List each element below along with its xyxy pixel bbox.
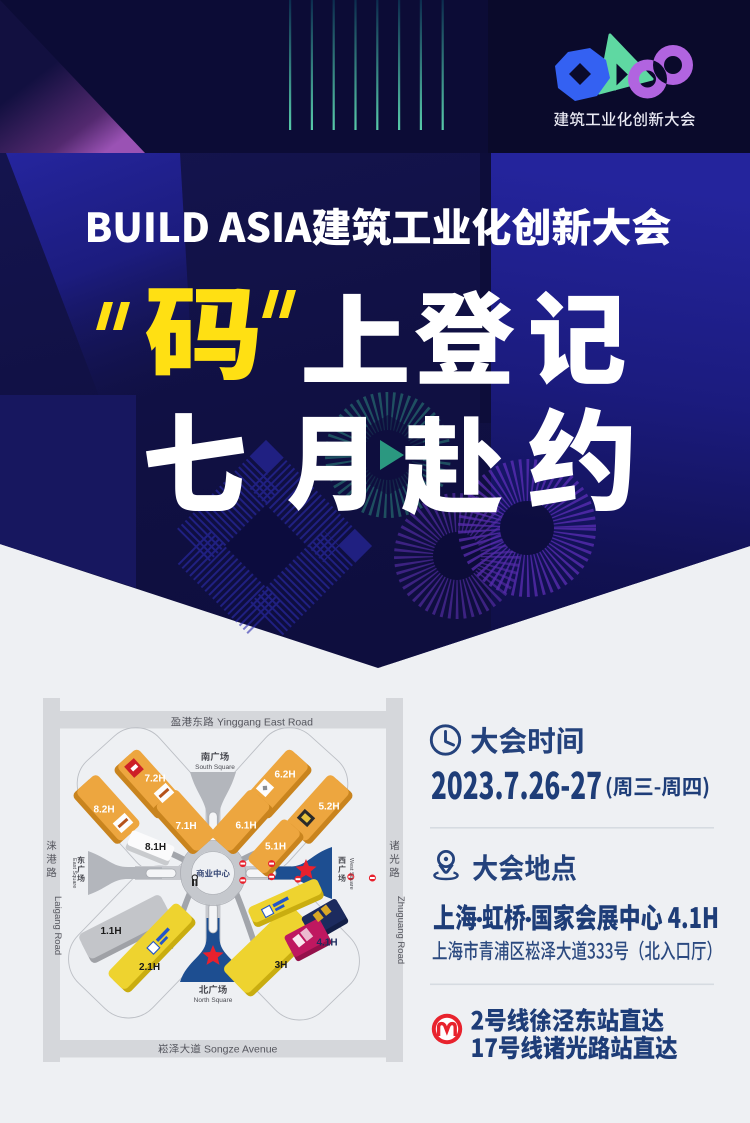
svg-text:Songze Avenue: Songze Avenue [204, 1044, 278, 1056]
svg-text:Zhuguang Road: Zhuguang Road [395, 896, 406, 964]
svg-text:7.1H: 7.1H [175, 821, 196, 832]
svg-text:South Square: South Square [195, 764, 235, 771]
svg-text:Laigang Road: Laigang Road [52, 896, 63, 955]
svg-text:1.1H: 1.1H [100, 926, 121, 937]
svg-text:2.1H: 2.1H [139, 962, 160, 973]
svg-text:8.2H: 8.2H [93, 805, 114, 816]
svg-text:4.1H: 4.1H [316, 938, 337, 949]
svg-text:3H: 3H [275, 960, 288, 971]
svg-text:West Square: West Square [348, 858, 354, 890]
svg-text:East Square: East Square [71, 858, 77, 888]
svg-text:8.1H: 8.1H [145, 842, 166, 853]
svg-text:5.2H: 5.2H [318, 802, 339, 813]
svg-text:6.1H: 6.1H [235, 821, 256, 832]
svg-text:6.2H: 6.2H [274, 770, 295, 781]
svg-text:North Square: North Square [194, 997, 233, 1004]
svg-text:5.1H: 5.1H [265, 842, 286, 853]
svg-text:Yinggang East Road: Yinggang East Road [217, 717, 313, 729]
svg-text:7.2H: 7.2H [144, 774, 165, 785]
